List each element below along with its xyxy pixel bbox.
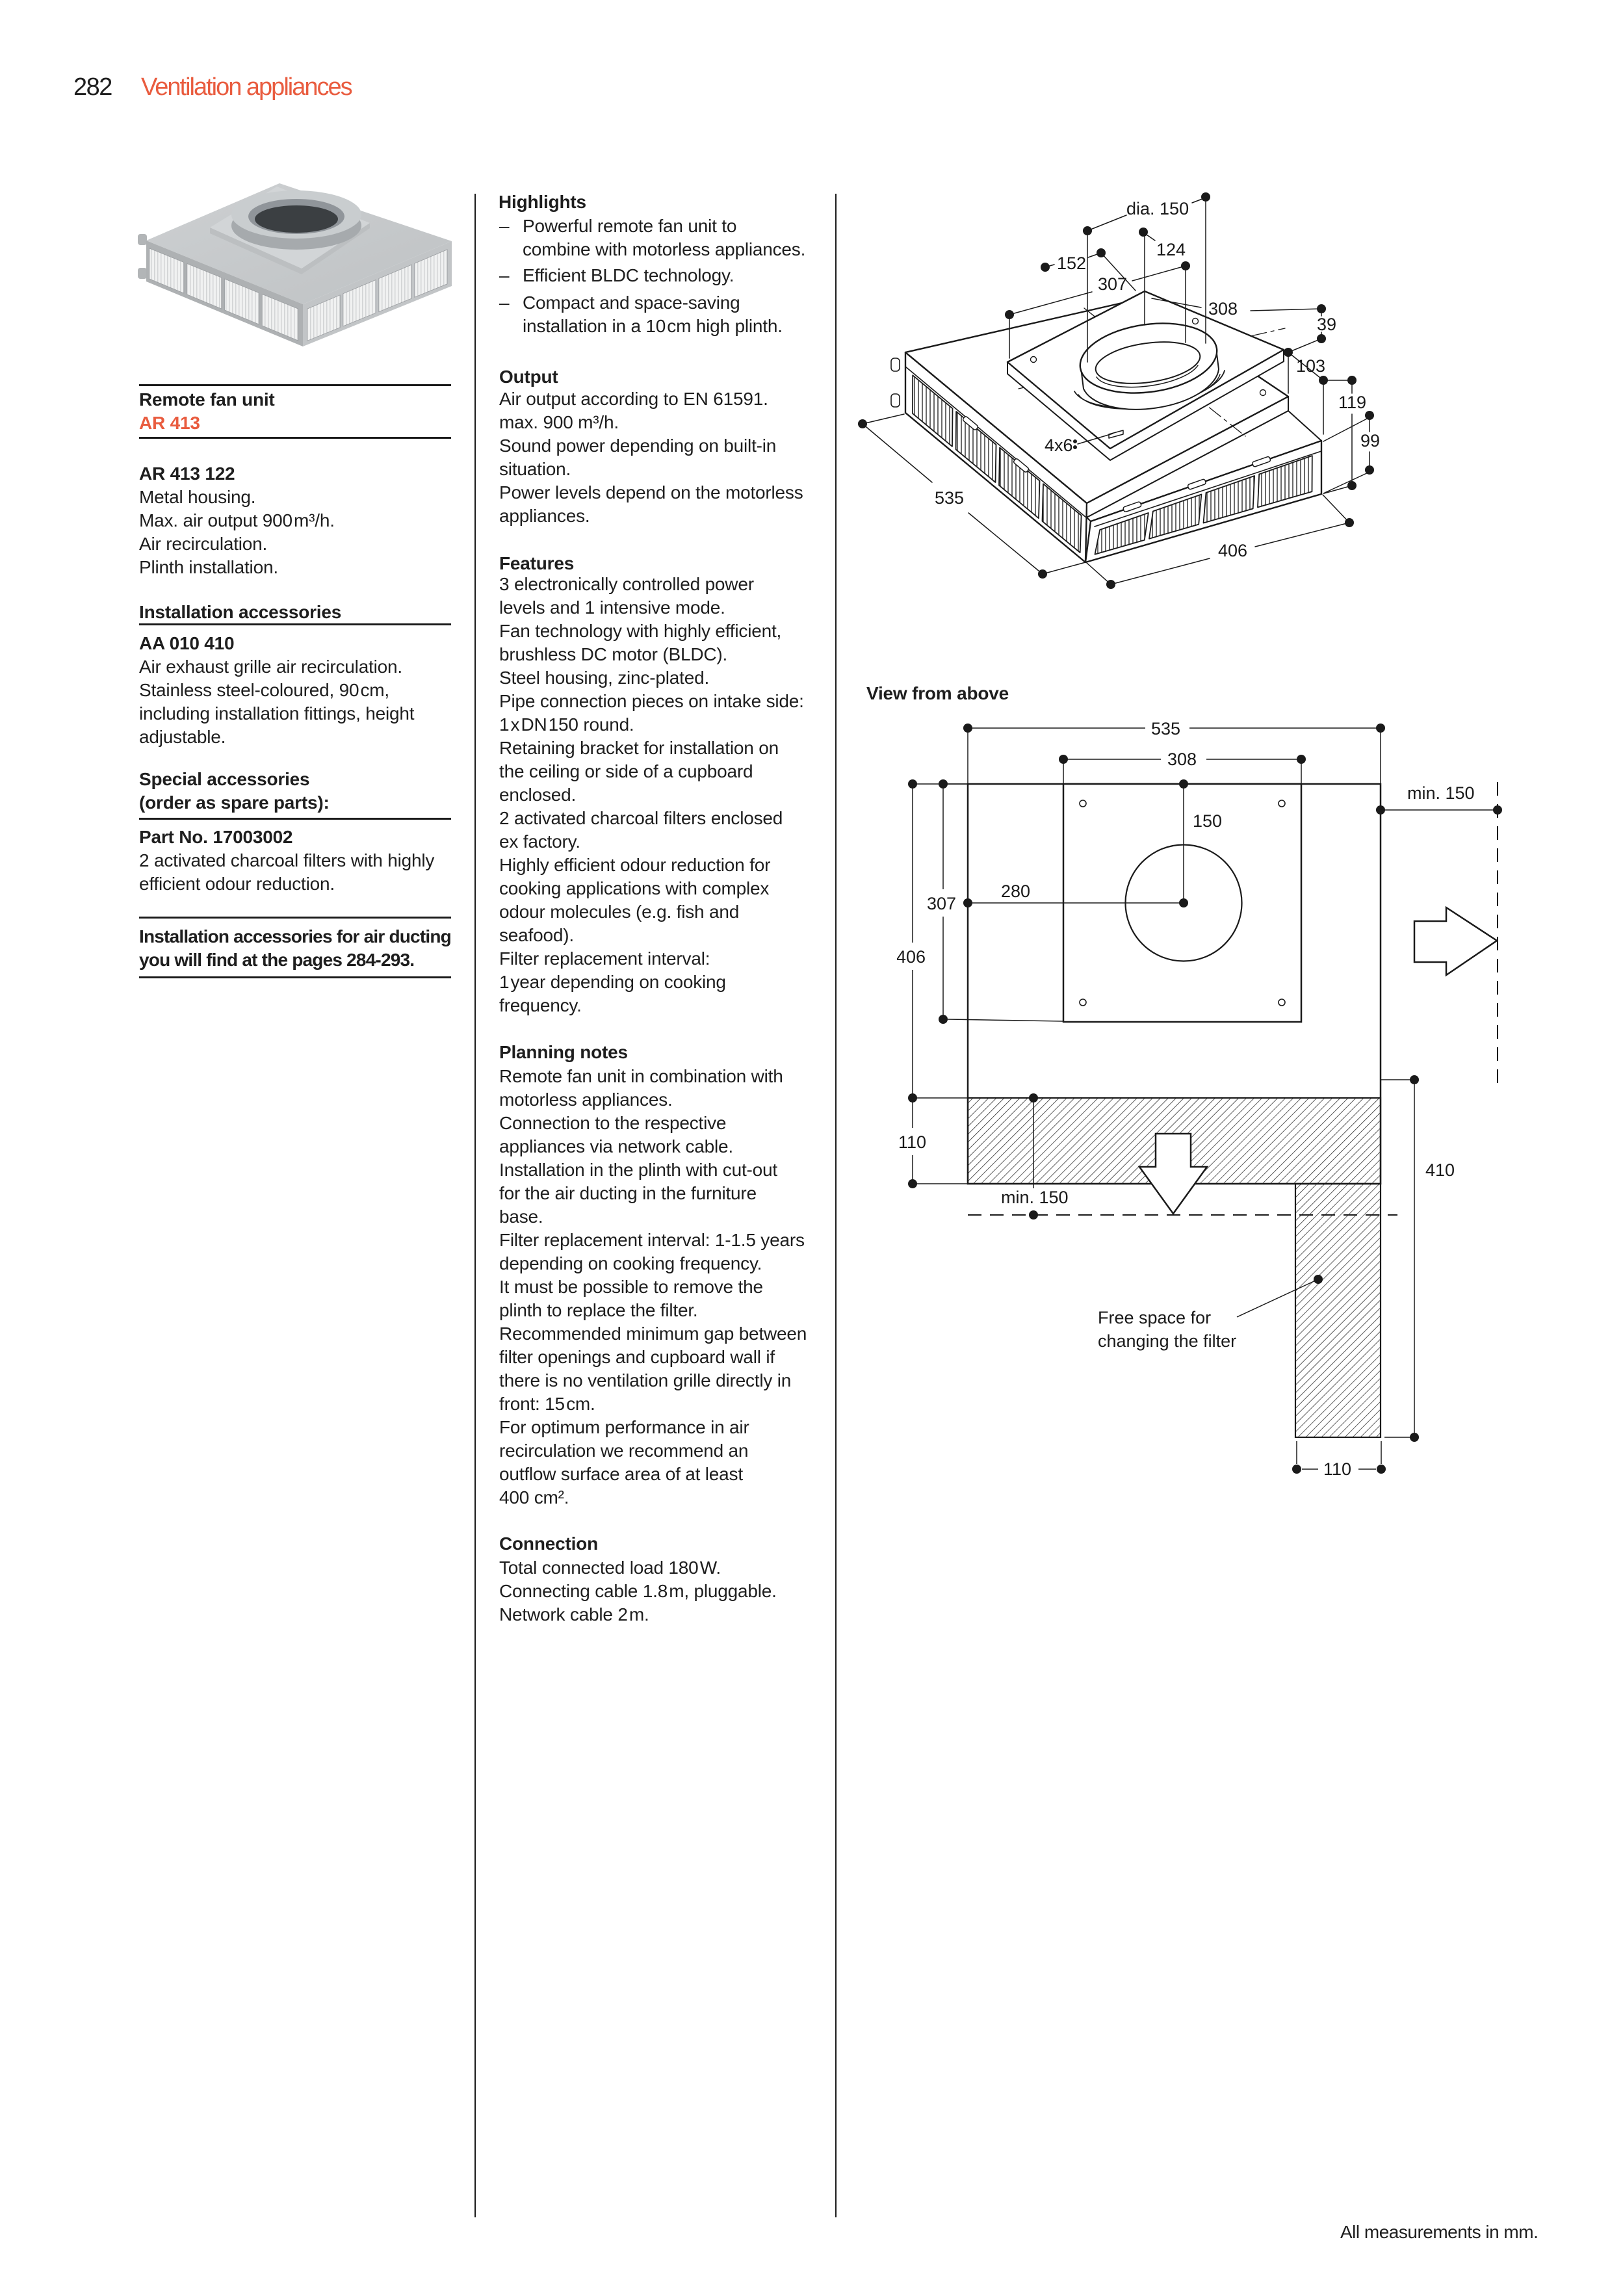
- svg-text:308: 308: [1167, 750, 1197, 769]
- svg-text:150: 150: [1193, 811, 1222, 831]
- svg-text:308: 308: [1208, 299, 1238, 319]
- svg-text:119: 119: [1338, 393, 1366, 412]
- svg-text:280: 280: [1001, 881, 1030, 901]
- svg-text:103: 103: [1296, 356, 1325, 376]
- svg-text:4x6: 4x6: [1045, 436, 1073, 455]
- svg-text:Free space for: Free space for: [1098, 1308, 1211, 1327]
- svg-text:110: 110: [1323, 1459, 1351, 1479]
- svg-text:39: 39: [1317, 315, 1336, 334]
- svg-text:535: 535: [935, 488, 964, 508]
- svg-text:152: 152: [1057, 254, 1086, 273]
- svg-text:410: 410: [1425, 1160, 1455, 1180]
- svg-text:307: 307: [1098, 274, 1127, 294]
- svg-text:changing the filter: changing the filter: [1098, 1331, 1236, 1351]
- svg-text:min. 150: min. 150: [1407, 783, 1475, 803]
- svg-text:99: 99: [1360, 431, 1380, 450]
- svg-text:406: 406: [897, 947, 926, 967]
- svg-text:124: 124: [1156, 240, 1186, 259]
- svg-text:307: 307: [927, 894, 956, 913]
- svg-text:406: 406: [1218, 541, 1247, 560]
- svg-text:min. 150: min. 150: [1001, 1188, 1069, 1207]
- svg-text:110: 110: [898, 1132, 926, 1152]
- svg-text:dia. 150: dia. 150: [1126, 199, 1189, 218]
- svg-text:535: 535: [1151, 719, 1180, 738]
